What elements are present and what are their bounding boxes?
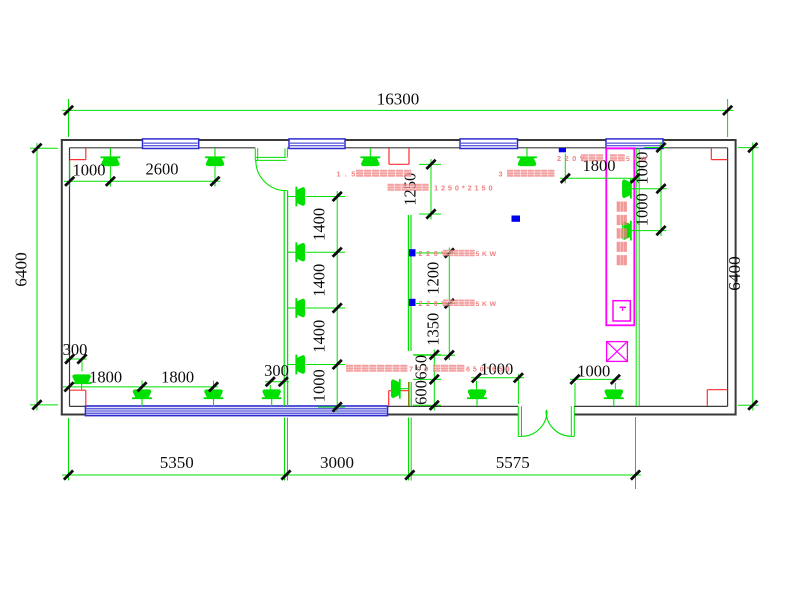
svg-text:300: 300 xyxy=(264,361,289,380)
svg-text:5 K W: 5 K W xyxy=(626,156,647,163)
svg-text:7 0 0: 7 0 0 xyxy=(409,365,429,374)
svg-text:1400: 1400 xyxy=(310,264,329,297)
svg-text:1000: 1000 xyxy=(632,193,651,226)
svg-text:1800: 1800 xyxy=(161,367,194,386)
svg-text:3000: 3000 xyxy=(320,453,354,472)
svg-text:1200: 1200 xyxy=(424,262,443,295)
svg-text:1 . 5: 1 . 5 xyxy=(337,169,357,178)
svg-text:6400: 6400 xyxy=(12,252,31,286)
svg-text:300: 300 xyxy=(63,340,88,359)
svg-text:1400: 1400 xyxy=(310,320,329,353)
svg-text:5350: 5350 xyxy=(160,453,194,472)
svg-text:1400: 1400 xyxy=(310,208,329,241)
svg-text:1800: 1800 xyxy=(89,367,122,386)
svg-text:1 2 5 0 * 2 1 5 0: 1 2 5 0 * 2 1 5 0 xyxy=(434,184,493,193)
svg-text:2 2 0 V: 2 2 0 V xyxy=(419,299,447,308)
svg-text:3: 3 xyxy=(499,169,503,178)
svg-text:1000: 1000 xyxy=(577,361,610,380)
svg-text:1350: 1350 xyxy=(424,313,443,346)
svg-text:16300: 16300 xyxy=(377,90,420,109)
svg-text:2600: 2600 xyxy=(146,160,179,179)
svg-text:600: 600 xyxy=(412,380,431,405)
svg-text:1000: 1000 xyxy=(73,161,106,180)
svg-text:5575: 5575 xyxy=(496,453,530,472)
svg-text:1000: 1000 xyxy=(310,369,329,402)
svg-text:5 K W: 5 K W xyxy=(476,251,497,258)
svg-text:2 2 0 V: 2 2 0 V xyxy=(419,249,447,258)
svg-text:6400: 6400 xyxy=(725,256,744,290)
svg-text:6 5 0 * 6 5 0: 6 5 0 * 6 5 0 xyxy=(466,365,510,374)
svg-text:5 K W: 5 K W xyxy=(476,301,497,308)
